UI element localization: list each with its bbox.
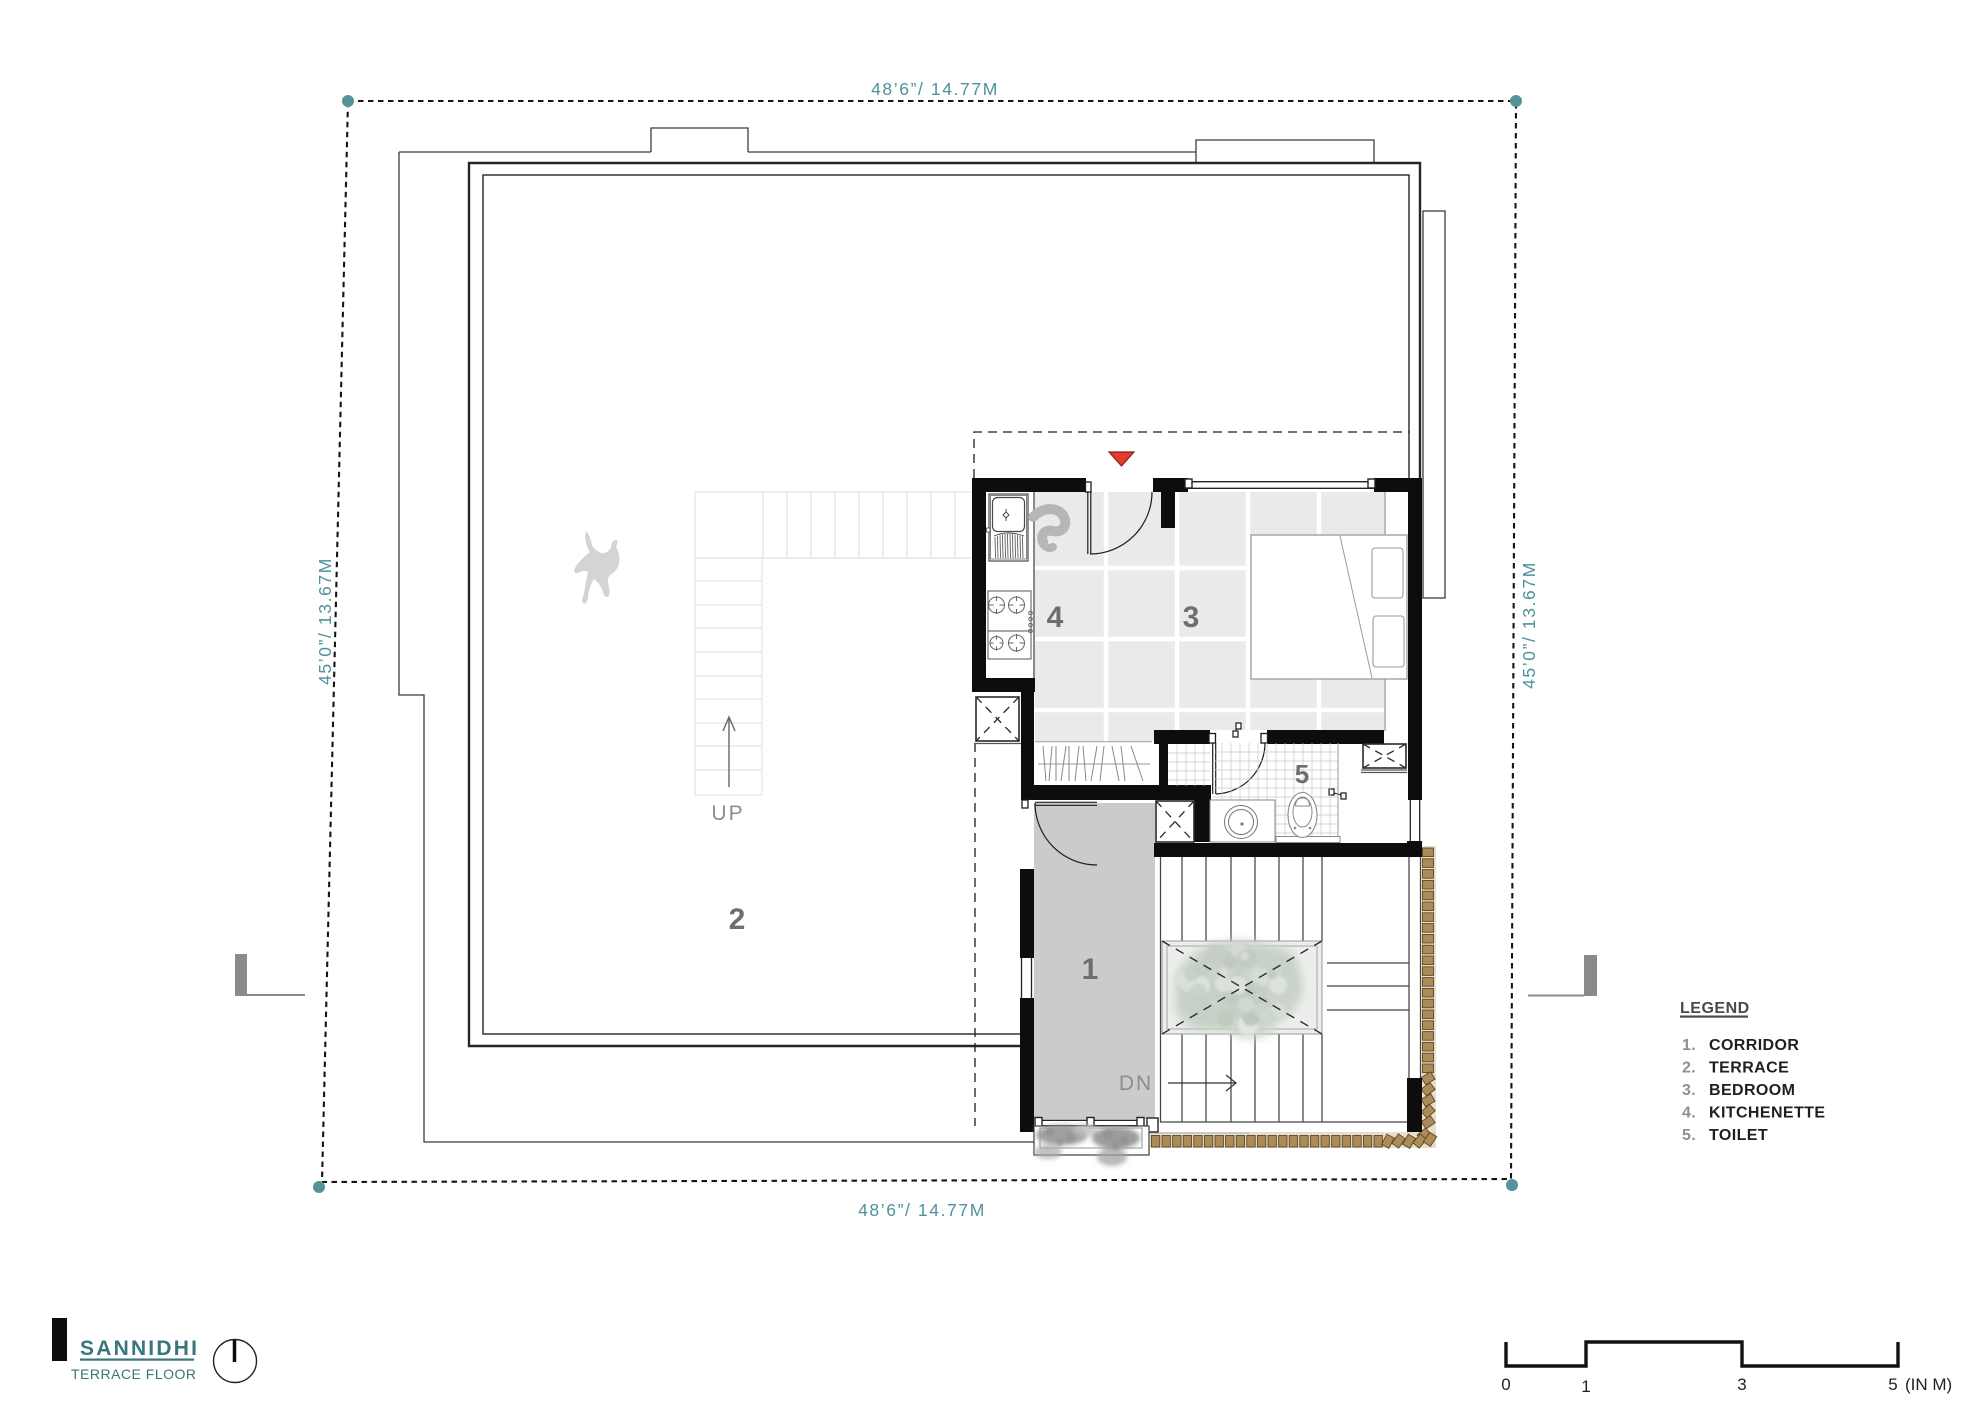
svg-text:5.: 5.	[1682, 1127, 1696, 1144]
svg-text:1.: 1.	[1682, 1037, 1696, 1054]
svg-text:3: 3	[1183, 601, 1200, 634]
svg-text:KITCHENETTE: KITCHENETTE	[1709, 1105, 1825, 1122]
svg-text:1: 1	[1581, 1377, 1590, 1396]
svg-text:4.: 4.	[1682, 1105, 1696, 1122]
svg-text:48’6”/ 14.77M: 48’6”/ 14.77M	[858, 1200, 986, 1220]
svg-text:45’0”/ 13.67M: 45’0”/ 13.67M	[1519, 561, 1539, 689]
svg-text:48’6”/ 14.77M: 48’6”/ 14.77M	[871, 79, 999, 99]
svg-text:5: 5	[1295, 759, 1309, 789]
svg-text:UP: UP	[711, 802, 744, 825]
svg-text:2.: 2.	[1682, 1060, 1696, 1077]
svg-text:1: 1	[1082, 953, 1099, 986]
svg-text:SANNIDHI: SANNIDHI	[80, 1337, 199, 1360]
svg-text:5: 5	[1888, 1375, 1897, 1394]
svg-text:CORRIDOR: CORRIDOR	[1709, 1037, 1799, 1054]
svg-text:TERRACE FLOOR: TERRACE FLOOR	[71, 1366, 197, 1382]
svg-text:3.: 3.	[1682, 1082, 1696, 1099]
svg-text:4: 4	[1047, 601, 1064, 634]
svg-text:TERRACE: TERRACE	[1709, 1060, 1789, 1077]
svg-text:45’0”/ 13.67M: 45’0”/ 13.67M	[315, 557, 335, 685]
svg-text:TOILET: TOILET	[1709, 1127, 1768, 1144]
svg-text:3: 3	[1737, 1375, 1746, 1394]
svg-text:0: 0	[1501, 1375, 1510, 1394]
svg-text:(IN M): (IN M)	[1905, 1375, 1952, 1394]
svg-text:DN: DN	[1119, 1072, 1153, 1095]
svg-text:LEGEND: LEGEND	[1680, 1000, 1750, 1017]
svg-text:BEDROOM: BEDROOM	[1709, 1082, 1795, 1099]
svg-text:2: 2	[729, 903, 746, 936]
